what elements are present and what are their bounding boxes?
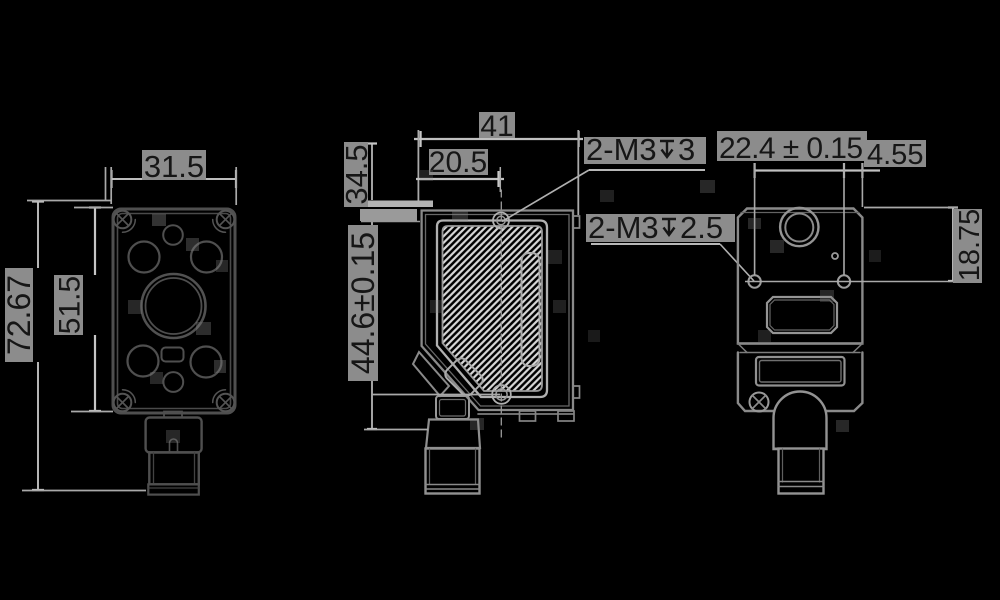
svg-text:4.55: 4.55 [867, 139, 923, 171]
svg-text:3: 3 [678, 132, 695, 167]
svg-text:51.5: 51.5 [54, 276, 87, 334]
svg-text:41: 41 [480, 110, 513, 143]
svg-text:2-M3: 2-M3 [588, 210, 659, 245]
svg-text:20.5: 20.5 [429, 146, 487, 179]
svg-text:18.75: 18.75 [954, 209, 986, 282]
svg-text:2.5: 2.5 [680, 210, 723, 245]
svg-text:2-M3: 2-M3 [586, 132, 657, 167]
svg-text:34.5: 34.5 [339, 144, 374, 204]
svg-text:22.4 ± 0.15: 22.4 ± 0.15 [719, 132, 863, 165]
svg-text:44.6±0.15: 44.6±0.15 [345, 232, 381, 374]
svg-text:72.67: 72.67 [1, 275, 37, 355]
svg-text:31.5: 31.5 [144, 149, 204, 184]
